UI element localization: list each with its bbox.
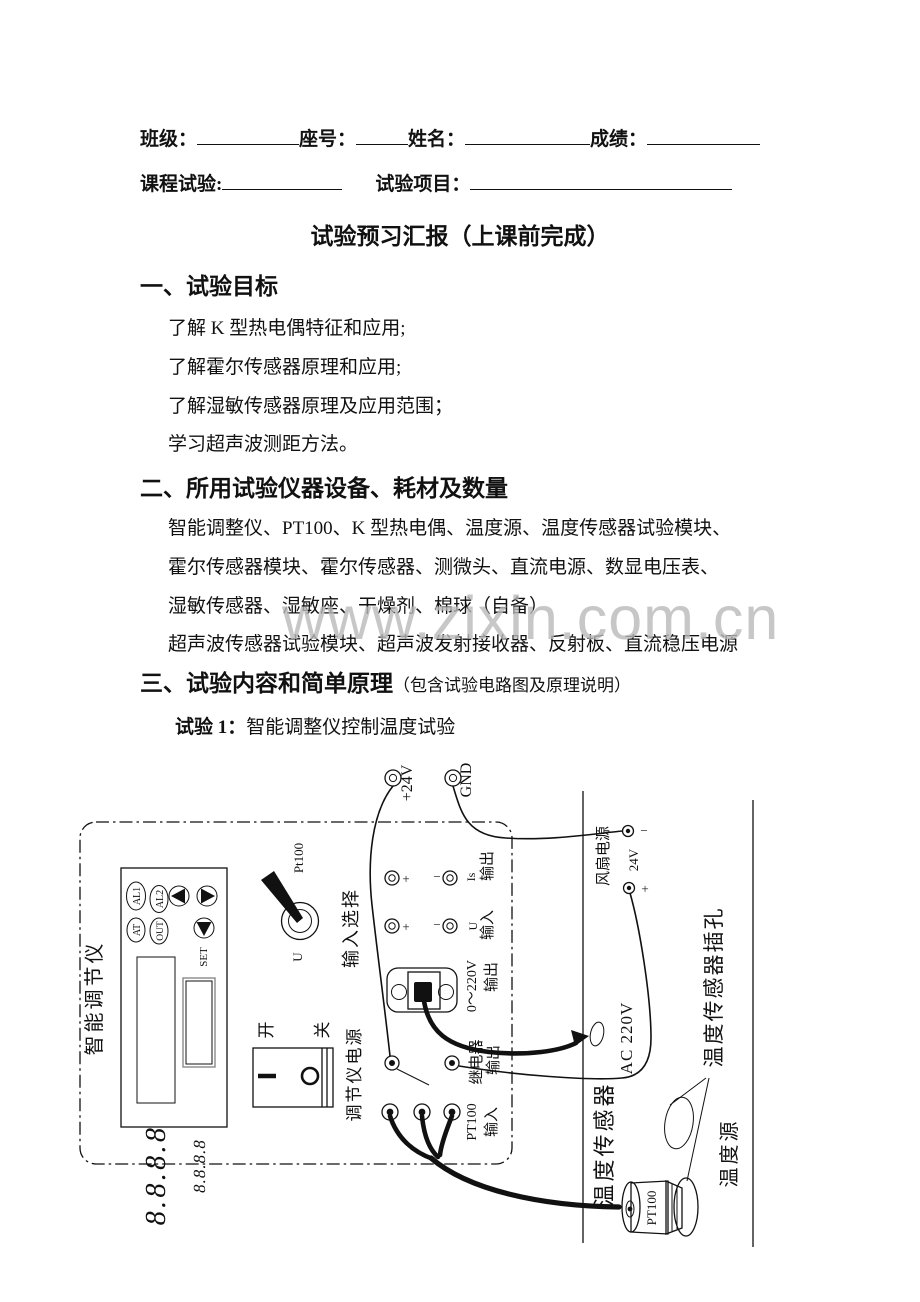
button-at-label: AT	[132, 924, 143, 936]
leader-line-jack	[670, 1078, 706, 1105]
terminal-is-plus-inner	[389, 875, 395, 881]
minus-sign: −	[433, 917, 440, 932]
sensor-jack-hole	[661, 1095, 697, 1151]
plus-sign: +	[402, 919, 409, 934]
minus-sign: −	[433, 869, 440, 884]
terminal-u-plus-inner	[389, 923, 395, 929]
switch-edge-lines	[322, 1048, 327, 1107]
toggle-pos-u-label: U	[290, 952, 305, 962]
outlet-hole-right	[439, 985, 454, 1000]
terminal-is-minus-inner	[447, 875, 453, 881]
terminal-u-minus-inner	[447, 923, 453, 929]
leader-line-probe	[687, 1078, 709, 1181]
display-sub-digits: 8.8.8.8	[190, 1138, 209, 1194]
wire-pt100-bundle	[431, 1158, 619, 1207]
temp-source-label: 温度源	[718, 1119, 741, 1188]
terminal-relay-right-inner	[449, 1060, 455, 1066]
terminal-u-minus	[443, 919, 457, 933]
button-al1-label: AL1	[132, 887, 143, 905]
power-off-label: 关	[313, 1022, 332, 1039]
circuit-diagram: +24V GND 智能调节仪 AL1 AL2 AT OUT SET 8.8.8.…	[0, 0, 920, 1302]
button-set-label: SET	[198, 947, 210, 967]
temp-sensor-label: 温度传感器	[592, 1081, 617, 1206]
arrow-down-icon	[197, 922, 212, 936]
relay-output: 继电器 输出	[385, 1039, 502, 1085]
button-out-label: OUT	[156, 921, 166, 941]
terminal-gnd-inner	[449, 774, 456, 781]
button-al2-label: AL2	[155, 890, 166, 908]
relay-contact-symbol	[397, 1069, 429, 1085]
plus-sign: +	[402, 871, 409, 886]
u-in-label: 输入	[479, 910, 496, 940]
signal-terminals: + − Is 输出 + − U 输入	[385, 851, 496, 940]
label-gnd: GND	[458, 763, 475, 798]
ac-inlet-hole	[588, 1021, 606, 1047]
arrow-right-icon	[201, 889, 215, 904]
regulator-name-label: 智能调节仪	[83, 941, 106, 1056]
terminal-is-plus	[385, 871, 399, 885]
arrow-left-icon	[171, 889, 185, 904]
pt100-probe: PT100	[622, 1178, 698, 1236]
is-label: Is	[464, 872, 478, 881]
wire-24v-to-relay	[370, 786, 393, 1056]
v24-label: 24V	[626, 848, 641, 871]
terminal-fan-minus-inner	[626, 829, 630, 833]
terminal-u-plus	[385, 919, 399, 933]
display-main-digits: 8.8.8.8	[140, 1122, 172, 1227]
terminal-fan-plus-inner	[627, 886, 631, 890]
power-on-label: 开	[257, 1022, 276, 1039]
power-switch: 开 关 调节仪电源	[253, 1022, 364, 1122]
probe-wire-dot	[628, 1207, 633, 1212]
pt100-in-label2: 输入	[483, 1107, 500, 1137]
wire-pt100-c	[440, 1116, 452, 1155]
u-label: U	[466, 921, 480, 930]
sensor-jack-label: 温度传感器插孔	[702, 907, 726, 1068]
regulator-power-label: 调节仪电源	[345, 1027, 364, 1122]
label-24v: +24V	[399, 764, 416, 801]
is-out-label: 输出	[479, 851, 496, 881]
supply-terminals: +24V GND	[385, 763, 475, 802]
display-main-box	[137, 957, 175, 1103]
input-select-label: 输入选择	[341, 888, 361, 968]
pt100-in-label: PT100	[465, 1103, 480, 1140]
plug	[414, 982, 432, 1002]
toggle-pos-pt100-label: Pt100	[291, 843, 306, 873]
probe-label: PT100	[644, 1191, 659, 1226]
display-sub-outer-box	[183, 978, 215, 1067]
terminal-pt100-3-inner	[449, 1109, 456, 1116]
terminal-relay-left-inner	[389, 1060, 395, 1066]
ac-outlet: 0～220V 输出	[387, 960, 500, 1012]
terminal-pt100-2-inner	[419, 1109, 426, 1116]
switch-off-mark	[302, 1068, 318, 1084]
minus-sign: −	[640, 823, 647, 838]
document-page: 班级：座号：姓名：成绩： 课程试验:试验项目： 试验预习汇报（上课前完成） 一、…	[0, 0, 920, 1302]
relay-out-label: 输出	[485, 1045, 502, 1075]
terminal-is-minus	[443, 871, 457, 885]
terminal-pt100-1-inner	[387, 1109, 394, 1116]
outlet-hole-left	[392, 985, 407, 1000]
relay-label: 继电器	[468, 1039, 485, 1084]
v220-out-label: 输出	[483, 962, 500, 992]
terminal-24v-inner	[389, 774, 396, 781]
ac220-label: AC 220V	[617, 1002, 636, 1075]
display-sub-box	[186, 981, 212, 1064]
fan-power-label: 风扇电源	[595, 826, 612, 886]
fan-power: 风扇电源 − 24V +	[595, 823, 649, 896]
input-select-switch: Pt100 U 输入选择	[261, 843, 361, 968]
v220-label: 0～220V	[465, 960, 480, 1012]
regulator-panel: AL1 AL2 AT OUT SET 8.8.8.8 8.8.8.8	[121, 868, 227, 1227]
plus-sign: +	[641, 881, 648, 896]
wire-pt100-b	[422, 1116, 438, 1157]
